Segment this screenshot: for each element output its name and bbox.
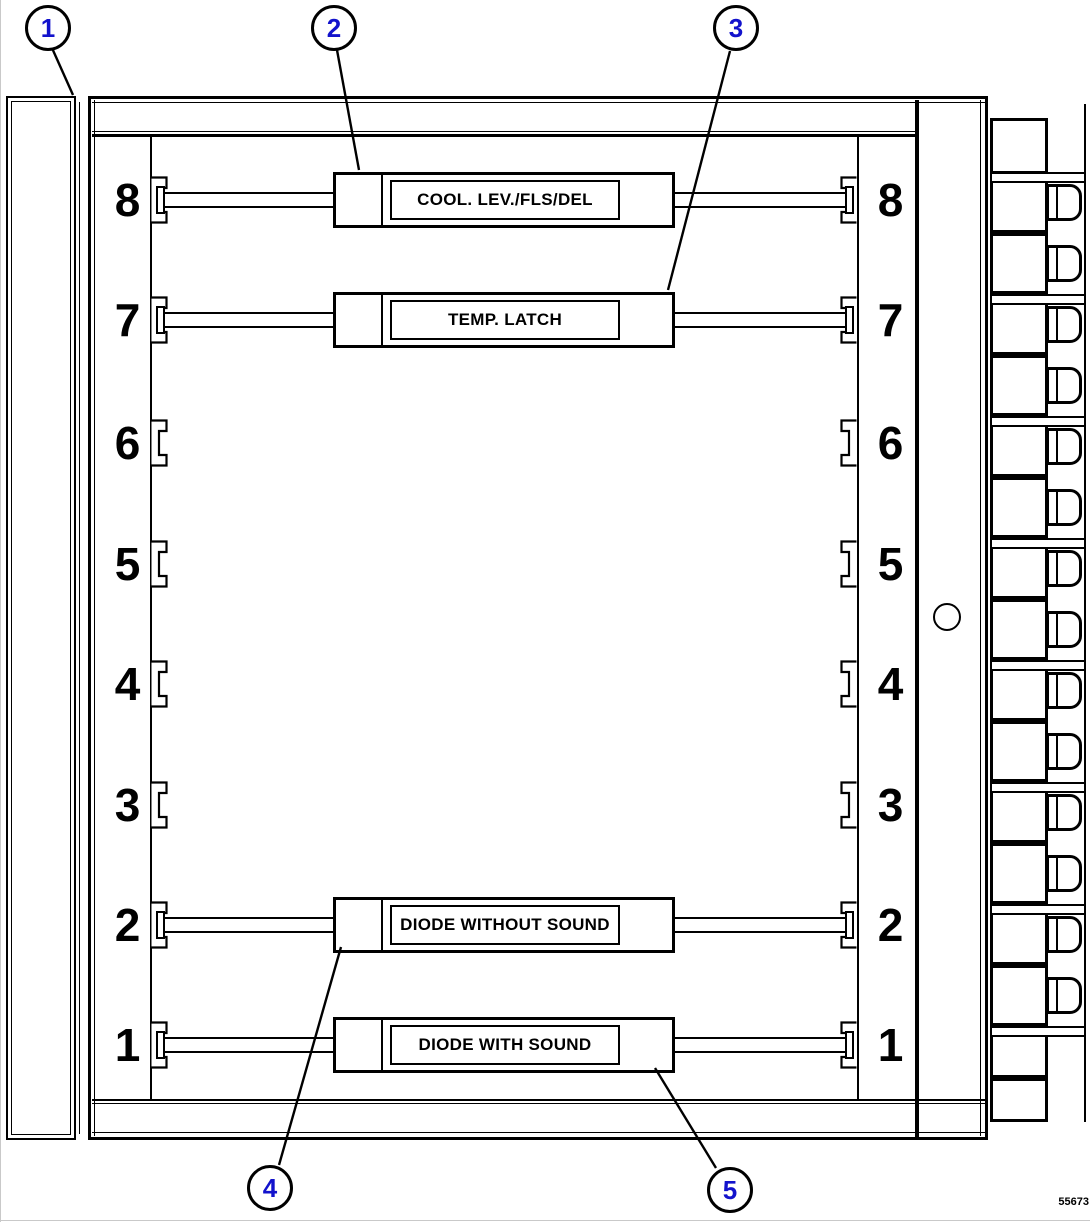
enclosure-inner-left-line <box>94 100 95 1136</box>
connector-plug-divider <box>1056 553 1058 584</box>
rail-end-right-7 <box>845 306 854 334</box>
relay-rail-right-1 <box>672 1037 850 1053</box>
enclosure-inner-right-line <box>980 100 981 1136</box>
mounting-clip-right-5 <box>840 540 858 588</box>
bottom-band-line <box>92 1103 986 1104</box>
module-divider-7 <box>381 295 383 345</box>
rail-end-left-8 <box>156 186 165 214</box>
clip-shape <box>150 540 168 588</box>
cage-wall-right <box>857 137 859 1100</box>
module-label-2: DIODE WITHOUT SOUND <box>390 905 620 945</box>
connector-plug <box>1046 367 1082 404</box>
slot-number-right-2: 2 <box>862 897 918 953</box>
slot-number-left-3: 3 <box>99 777 155 833</box>
relay-rail-right-7 <box>672 312 850 328</box>
image-edge-left <box>0 0 1 1222</box>
connector-end-block <box>990 1078 1048 1122</box>
slot-number-left-5: 5 <box>99 536 155 592</box>
relay-box-figure: 55673 88COOL. LEV./FLS/DEL77TEMP. LATCH6… <box>0 0 1090 1222</box>
slot-number-left-7: 7 <box>99 292 155 348</box>
clip-shape <box>150 781 168 829</box>
mounting-clip-right-6 <box>840 419 858 467</box>
figure-number: 55673 <box>1058 1196 1089 1208</box>
connector-plug-divider <box>1056 248 1058 279</box>
slot-number-left-6: 6 <box>99 415 155 471</box>
connector-mount-bar <box>990 172 1086 183</box>
mounting-clip-right-4 <box>840 660 858 708</box>
connector-body <box>990 477 1048 538</box>
clip-shape <box>840 540 858 588</box>
callout-2: 2 <box>311 5 357 51</box>
connector-mount-bar <box>990 1026 1086 1037</box>
cage-wall-left <box>150 137 152 1100</box>
connector-plug <box>1046 672 1082 709</box>
connector-plug <box>1046 977 1082 1014</box>
connector-plug <box>1046 916 1082 953</box>
slot-number-left-2: 2 <box>99 897 155 953</box>
slot-number-left-1: 1 <box>99 1017 155 1073</box>
connector-mount-bar <box>990 660 1086 671</box>
connector-mount-bar <box>990 294 1086 305</box>
connector-body <box>990 599 1048 660</box>
connector-plug <box>1046 428 1082 465</box>
slot-number-left-4: 4 <box>99 656 155 712</box>
connector-plug <box>1046 611 1082 648</box>
callout-5: 5 <box>707 1167 753 1213</box>
slot-number-right-3: 3 <box>862 777 918 833</box>
relay-rail-right-8 <box>672 192 850 208</box>
connector-body <box>990 355 1048 416</box>
slot-number-right-1: 1 <box>862 1017 918 1073</box>
connector-plug-divider <box>1056 187 1058 218</box>
clip-shape <box>840 419 858 467</box>
connector-rail-line <box>1084 104 1086 1122</box>
connector-body <box>990 843 1048 904</box>
rail-end-right-1 <box>845 1031 854 1059</box>
door-inner-panel <box>11 101 71 1135</box>
slot-number-right-8: 8 <box>862 172 918 228</box>
connector-plug-divider <box>1056 309 1058 340</box>
relay-rail-right-2 <box>672 917 850 933</box>
clip-shape <box>150 419 168 467</box>
connector-plug-divider <box>1056 919 1058 950</box>
connector-plug-divider <box>1056 431 1058 462</box>
connector-body <box>990 965 1048 1026</box>
connector-plug <box>1046 733 1082 770</box>
connector-plug-divider <box>1056 797 1058 828</box>
rail-end-left-7 <box>156 306 165 334</box>
slot-number-right-6: 6 <box>862 415 918 471</box>
clip-shape <box>150 660 168 708</box>
relay-rail-left-2 <box>160 917 336 933</box>
cabinet-door <box>6 96 76 1140</box>
connector-plug <box>1046 245 1082 282</box>
leader-line-1 <box>52 48 73 95</box>
connector-plug <box>1046 184 1082 221</box>
cage-bottom-rail <box>92 1099 986 1101</box>
slot-number-right-5: 5 <box>862 536 918 592</box>
connector-plug <box>1046 489 1082 526</box>
connector-plug-divider <box>1056 370 1058 401</box>
connector-plug-divider <box>1056 675 1058 706</box>
connector-mount-bar <box>990 538 1086 549</box>
connector-plug-divider <box>1056 980 1058 1011</box>
connector-top-block <box>990 118 1048 174</box>
connector-plug <box>1046 306 1082 343</box>
relay-rail-left-7 <box>160 312 336 328</box>
mounting-clip-left-4 <box>150 660 168 708</box>
connector-plug <box>1046 794 1082 831</box>
side-panel-wall <box>915 100 919 1137</box>
connector-mount-bar <box>990 782 1086 793</box>
slot-number-left-8: 8 <box>99 172 155 228</box>
clip-shape <box>840 781 858 829</box>
rail-end-left-1 <box>156 1031 165 1059</box>
enclosure-inner-bottom-line <box>92 1132 986 1133</box>
callout-3: 3 <box>713 5 759 51</box>
connector-body <box>990 721 1048 782</box>
module-divider-2 <box>381 900 383 950</box>
connector-plug-divider <box>1056 858 1058 889</box>
connector-body <box>990 233 1048 294</box>
image-edge-bottom <box>0 1220 1090 1221</box>
door-hinge-line <box>79 102 80 1134</box>
rail-end-left-2 <box>156 911 165 939</box>
mounting-clip-left-5 <box>150 540 168 588</box>
mounting-clip-right-3 <box>840 781 858 829</box>
clip-shape <box>840 660 858 708</box>
side-panel-hole <box>933 603 961 631</box>
slot-number-right-7: 7 <box>862 292 918 348</box>
mounting-clip-left-6 <box>150 419 168 467</box>
callout-1: 1 <box>25 5 71 51</box>
callout-4: 4 <box>247 1165 293 1211</box>
top-band-line <box>92 131 917 132</box>
module-divider-1 <box>381 1020 383 1070</box>
relay-enclosure <box>88 96 988 1140</box>
mounting-clip-left-3 <box>150 781 168 829</box>
connector-mount-bar <box>990 904 1086 915</box>
slot-number-right-4: 4 <box>862 656 918 712</box>
cage-top-rail <box>92 134 917 137</box>
rail-end-right-2 <box>845 911 854 939</box>
module-label-8: COOL. LEV./FLS/DEL <box>390 180 620 220</box>
relay-rail-left-8 <box>160 192 336 208</box>
connector-plug-divider <box>1056 736 1058 767</box>
relay-rail-left-1 <box>160 1037 336 1053</box>
module-label-7: TEMP. LATCH <box>390 300 620 340</box>
rail-end-right-8 <box>845 186 854 214</box>
module-label-1: DIODE WITH SOUND <box>390 1025 620 1065</box>
connector-plug <box>1046 550 1082 587</box>
module-divider-8 <box>381 175 383 225</box>
connector-plug-divider <box>1056 614 1058 645</box>
connector-plug-divider <box>1056 492 1058 523</box>
connector-plug <box>1046 855 1082 892</box>
connector-mount-bar <box>990 416 1086 427</box>
enclosure-inner-top-line <box>92 102 986 103</box>
